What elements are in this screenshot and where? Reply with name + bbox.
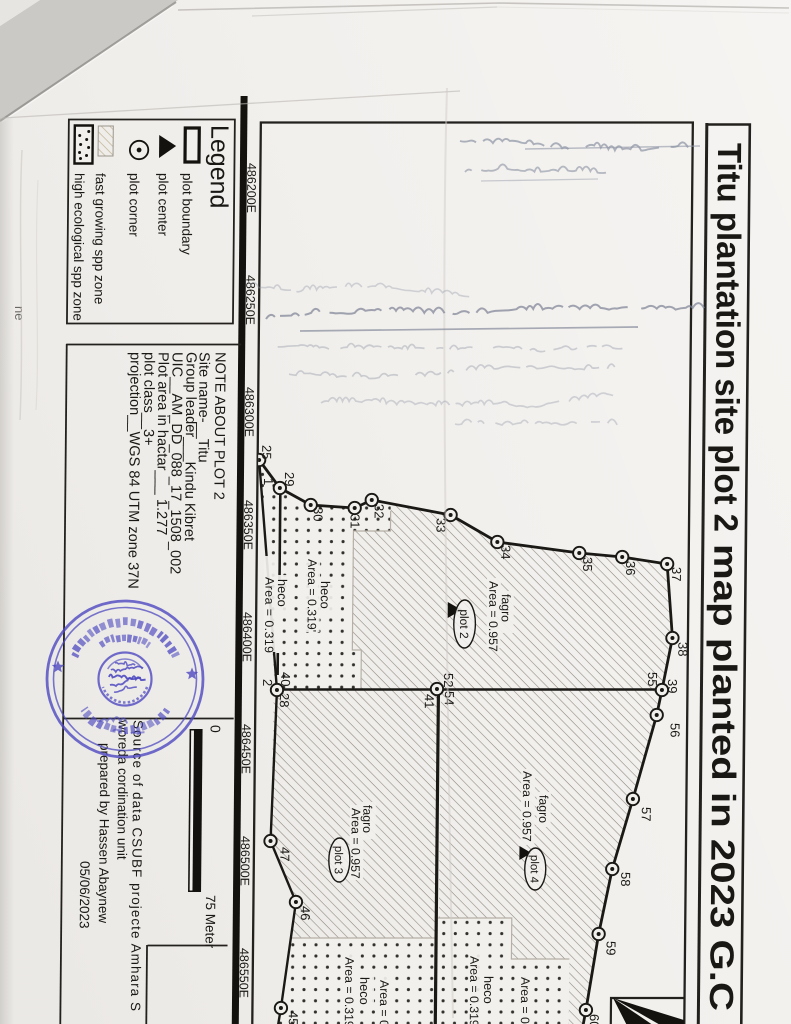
svg-text:ne: ne	[12, 306, 27, 320]
